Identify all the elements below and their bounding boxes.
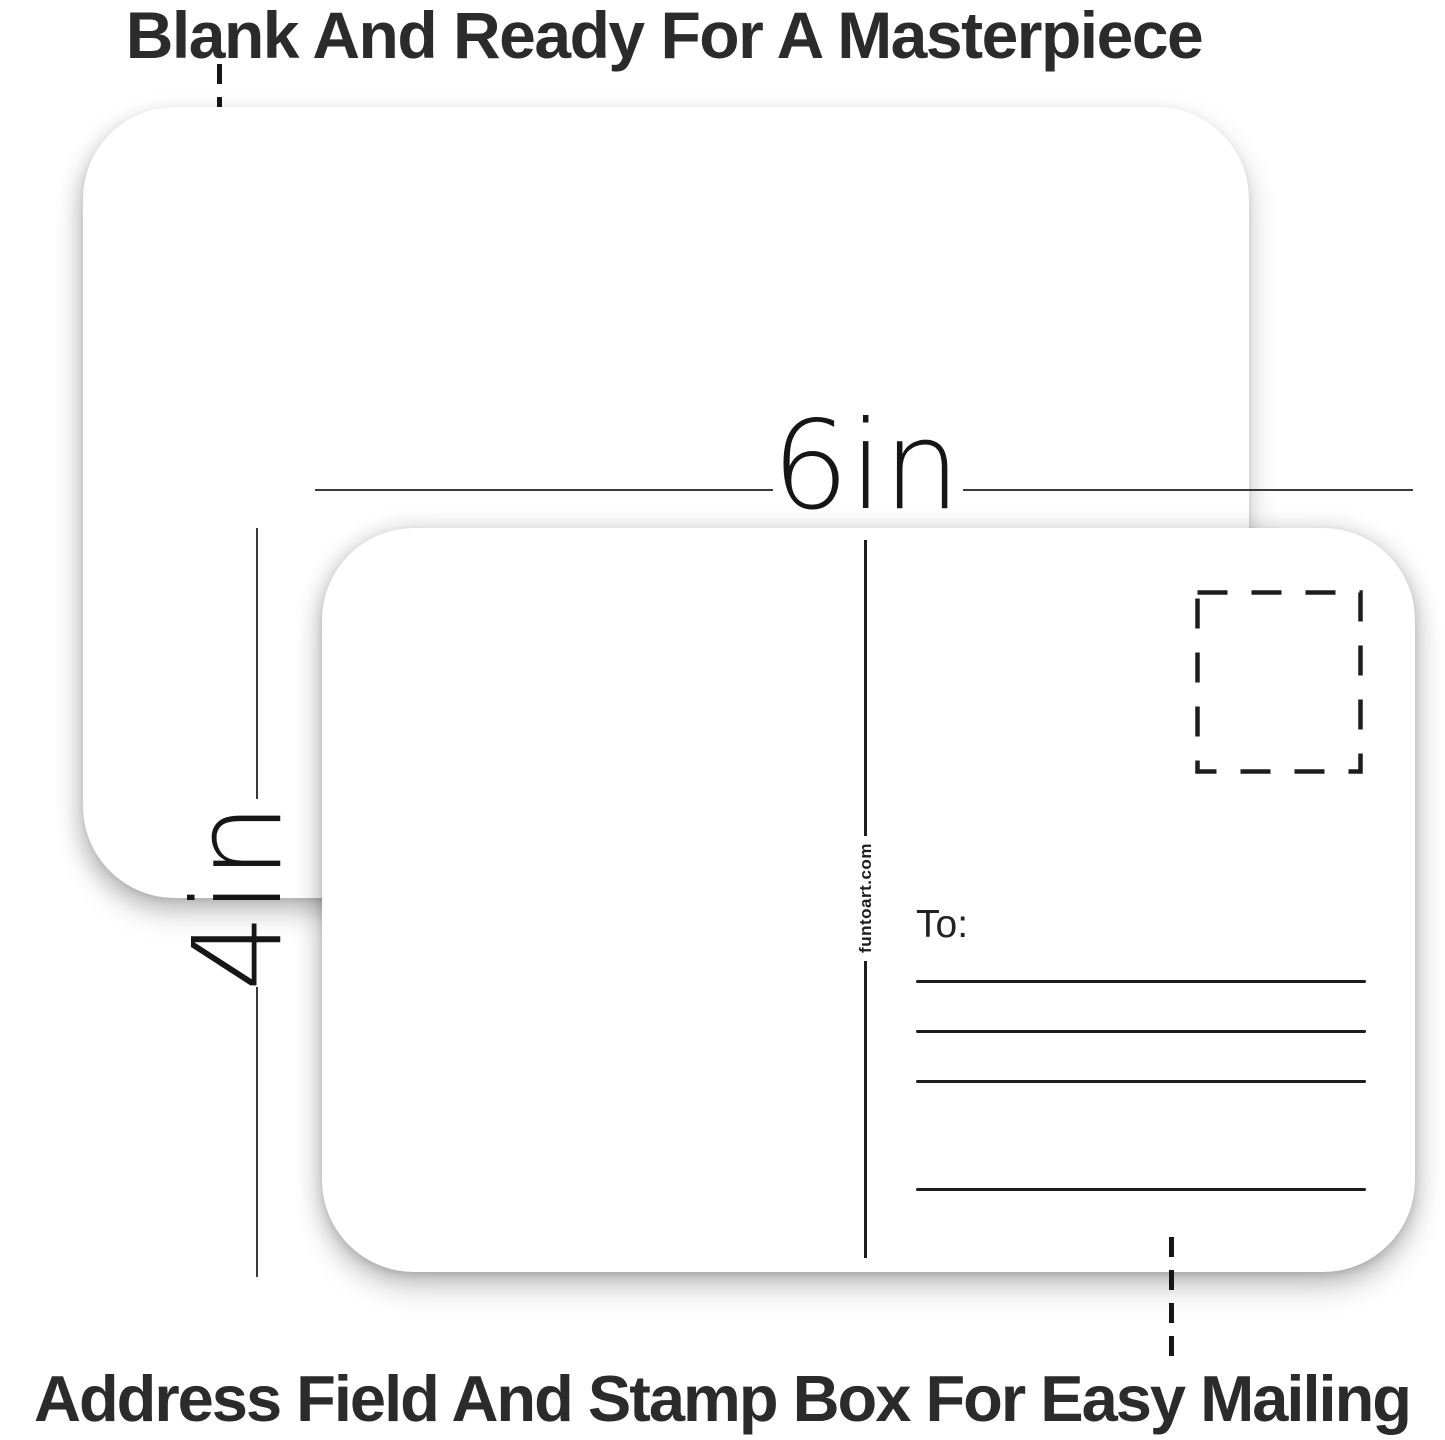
top-caption: Blank And Ready For A Masterpiece: [126, 2, 1202, 68]
to-label: To:: [916, 905, 968, 944]
address-line: [916, 1188, 1366, 1191]
width-dimension-label: 6in: [716, 396, 1016, 536]
bottom-caption: Address Field And Stamp Box For Easy Mai…: [34, 1366, 1410, 1431]
width-dimension-line-left: [315, 489, 773, 491]
address-line: [916, 1080, 1366, 1083]
stamp-box: [1195, 590, 1363, 774]
height-dimension-label: 4in: [163, 747, 313, 1047]
address-line: [916, 980, 1366, 983]
postcard-divider-line-upper: [864, 540, 867, 836]
postcard-divider-line-lower: [864, 961, 867, 1258]
address-line: [916, 1030, 1366, 1033]
pointer-line-bottom: [1169, 1237, 1174, 1365]
product-image: Blank And Ready For A Masterpiece funtoa…: [0, 0, 1445, 1440]
watermark-text: funtoart.com: [836, 798, 896, 998]
width-dimension-line-right: [963, 489, 1413, 491]
